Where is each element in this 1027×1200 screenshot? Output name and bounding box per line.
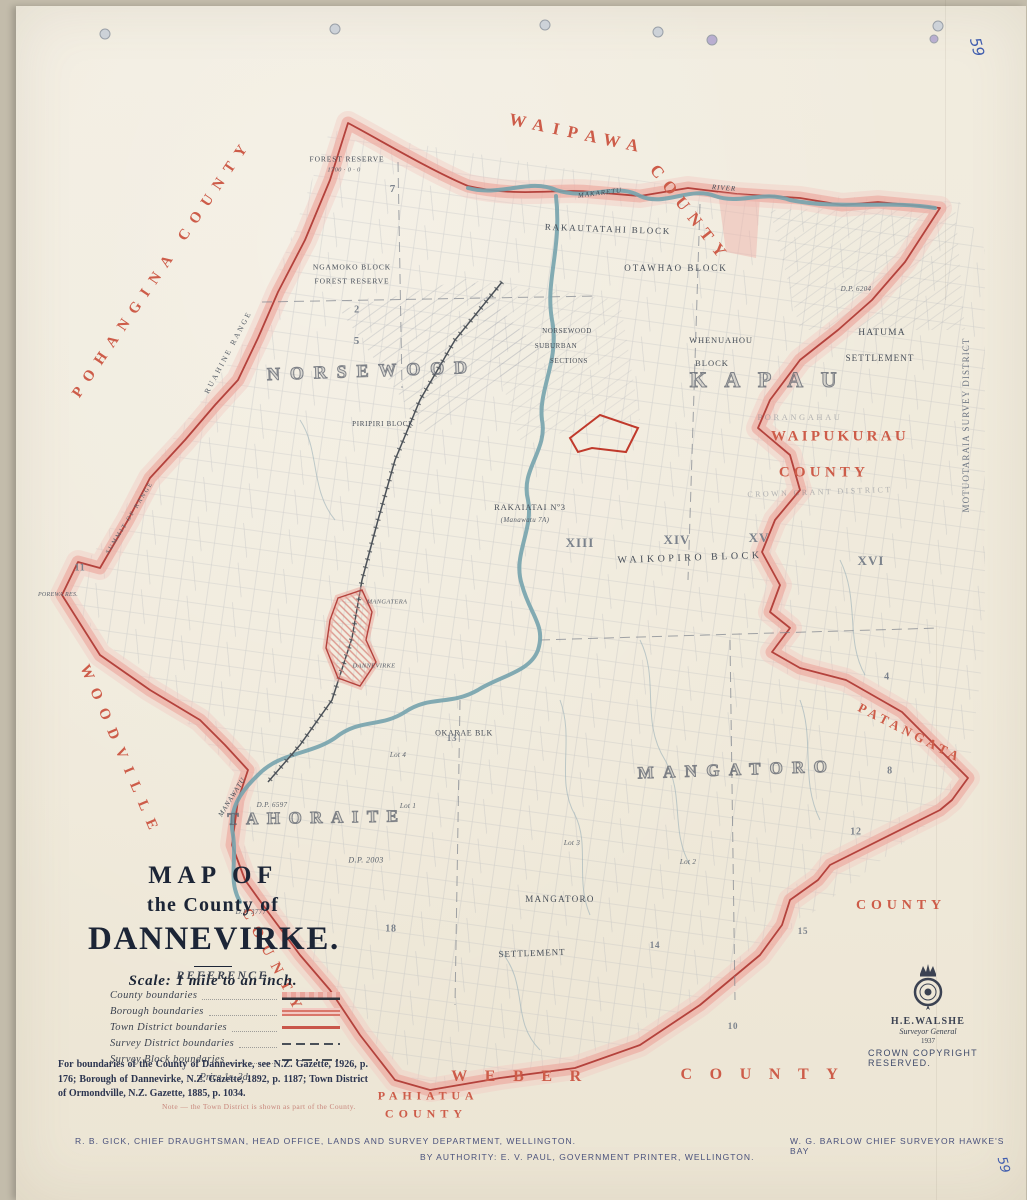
map-sheet: WAIPAWACOUNTYPOHANGINA COUNTYWOODVILLECO… xyxy=(0,0,1027,1200)
legend-heading: REFERENCE. xyxy=(110,968,340,983)
legend-item-label: Borough boundaries xyxy=(110,1006,204,1017)
legend-swatch-town xyxy=(282,1026,340,1029)
legend-item: County boundaries xyxy=(110,990,340,1001)
seal-year: 1937 xyxy=(878,1037,978,1045)
legend-leader xyxy=(232,1024,277,1032)
legend-item: Survey District boundaries xyxy=(110,1038,340,1049)
legend-swatch-county xyxy=(282,992,340,1000)
map-title-line3: DANNEVIRKE. xyxy=(88,921,338,958)
map-title-line1: MAP OF xyxy=(88,862,338,890)
punch-holes xyxy=(100,20,943,45)
legend-item: Town District boundaries xyxy=(110,1022,340,1033)
seal-title: Surveyor General xyxy=(878,1027,978,1036)
seal-name: H.E.WALSHE xyxy=(878,1016,978,1027)
surveyor-general-seal: H.E.WALSHE Surveyor General 1937 xyxy=(878,962,978,1045)
credit-printer: BY AUTHORITY: E. V. PAUL, GOVERNMENT PRI… xyxy=(420,1152,754,1162)
crown-badge-icon xyxy=(906,962,950,1014)
red-note: Note — the Town District is shown as par… xyxy=(162,1102,356,1111)
map-title-line2: the County of xyxy=(88,894,338,917)
legend-leader xyxy=(202,992,277,1000)
credit-draughtsman: R. B. GICK, CHIEF DRAUGHTSMAN, HEAD OFFI… xyxy=(75,1136,576,1146)
legend-rows: County boundariesBorough boundariesTown … xyxy=(110,990,340,1065)
title-rule xyxy=(194,966,232,967)
legend-leader xyxy=(239,1040,277,1048)
legend-leader xyxy=(209,1008,277,1016)
legend-swatch-borough xyxy=(282,1008,340,1016)
legend-item-label: County boundaries xyxy=(110,990,197,1001)
credit-surveyor: W. G. BARLOW CHIEF SURVEYOR HAWKE'S BAY xyxy=(790,1136,1027,1156)
legend-swatch-survey-district xyxy=(282,1043,340,1045)
legend-item: Borough boundaries xyxy=(110,1006,340,1017)
dannevirke-borough xyxy=(326,590,376,686)
gazette-note: For boundaries of the County of Dannevir… xyxy=(58,1058,368,1102)
legend-item-label: Town District boundaries xyxy=(110,1022,227,1033)
legend-item-label: Survey District boundaries xyxy=(110,1038,234,1049)
crown-copyright: CROWN COPYRIGHT RESERVED. xyxy=(868,1048,1027,1068)
